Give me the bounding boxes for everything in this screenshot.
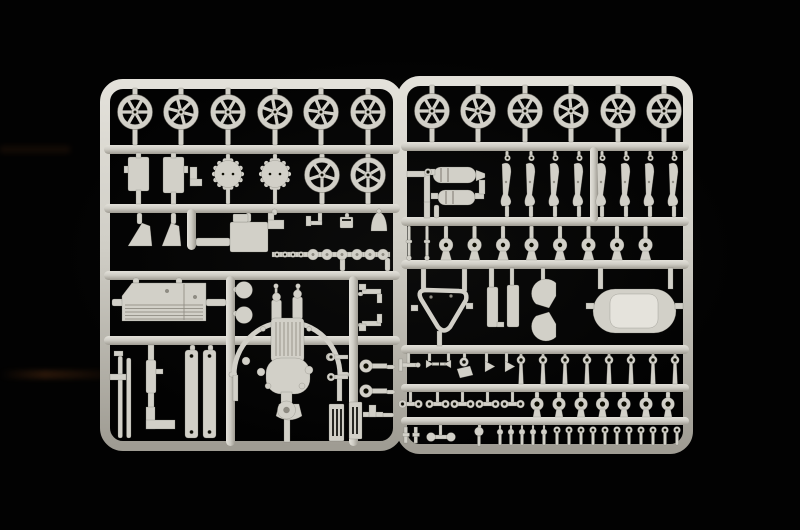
leaf-spring [501, 151, 511, 217]
ribbed-plate-1 [329, 404, 344, 441]
ring-pin [605, 354, 613, 384]
sprue-frames [104, 81, 689, 449]
sprue-photo [0, 0, 800, 530]
half-moon-parts [532, 268, 557, 341]
round-head-pin [582, 226, 596, 260]
spoked-wheel [164, 88, 199, 145]
flag-pin-2 [505, 353, 515, 372]
sprue-gate [385, 258, 390, 271]
spoked-wheel [304, 88, 339, 145]
ring-pin-large [531, 392, 544, 417]
ring-pin-small [650, 427, 657, 446]
ring-pin-small [602, 427, 609, 446]
sprue-gate [434, 205, 439, 218]
sprocket-wheel [212, 154, 244, 204]
leaf-spring [668, 151, 678, 217]
small-parts-row [403, 425, 484, 446]
round-head-pin [610, 226, 624, 260]
small-peg [508, 425, 514, 445]
seat-cushion [586, 268, 683, 333]
leaf-spring [620, 151, 630, 217]
spoked-wheel [258, 88, 293, 145]
ribbed-plate-2 [349, 402, 362, 439]
link-row [399, 392, 525, 408]
spoked-wheel [351, 88, 386, 145]
ring-pin [561, 354, 569, 384]
sprue-gate [386, 365, 395, 369]
round-head-pin [468, 226, 482, 260]
wedge-bracket-2 [162, 223, 181, 246]
small-peg [530, 425, 536, 445]
leaf-spring [525, 151, 535, 217]
fitting-arrow-1 [426, 353, 439, 368]
flag-pin-1 [485, 353, 495, 372]
spoked-wheel [601, 85, 636, 142]
strip-parts [487, 268, 519, 327]
ring-pin-small [638, 427, 645, 446]
spoked-wheel [647, 85, 682, 142]
spoked-wheel [305, 154, 340, 204]
sprocket-wheel [259, 154, 291, 204]
ring-pin-small [614, 427, 621, 446]
ring-pin [627, 354, 635, 384]
sprue-gate [137, 213, 142, 224]
tie-rod-ends [360, 360, 388, 398]
small-peg [497, 425, 503, 445]
ring-pin [539, 354, 547, 384]
small-peg [519, 425, 525, 445]
leaf-spring [644, 151, 654, 217]
leaf-spring [573, 151, 583, 217]
round-head-pin [553, 226, 567, 260]
ring-pin [649, 354, 657, 384]
headlight-discs [236, 282, 253, 324]
spoked-wheel [415, 85, 450, 142]
plain-pin [424, 226, 430, 261]
elbow-pipe [190, 167, 202, 186]
round-head-pin [439, 226, 453, 260]
sprue-gate [206, 299, 226, 306]
thin-rods [110, 351, 131, 438]
ring-pin [517, 354, 525, 384]
sprue-gate [196, 238, 230, 246]
bent-rod [306, 213, 322, 226]
chassis-bars [185, 350, 216, 438]
small-peg [541, 425, 547, 445]
crank-bracket-1 [359, 284, 382, 303]
round-head-pin [525, 226, 539, 260]
radiator-surround [411, 269, 473, 346]
spoked-wheel [211, 88, 246, 145]
ring-pin-large [596, 392, 609, 417]
engine-block [257, 284, 313, 442]
spoked-wheel [554, 85, 589, 142]
engine-hood [122, 283, 206, 321]
ring-pin [583, 354, 591, 384]
ring-pin-small [626, 427, 633, 446]
ring-pin-small [554, 427, 561, 446]
t-bracket [363, 405, 383, 417]
leaf-spring [549, 151, 559, 217]
fitting-clamp [457, 353, 473, 378]
ring-pin [671, 354, 679, 384]
wedge-bracket-1 [128, 223, 152, 246]
column-branch [146, 345, 175, 429]
sprue-gate [171, 213, 176, 224]
ring-pin-large [575, 392, 588, 417]
radiator-box-2 [163, 153, 188, 204]
ring-pin-large [662, 392, 675, 417]
crank-bracket-2 [359, 314, 382, 331]
fitting-arrow-2 [440, 353, 451, 368]
round-head-pin [639, 226, 653, 260]
ring-pin-small [578, 427, 585, 446]
ring-pin-small [590, 427, 597, 446]
photo-background [0, 0, 800, 530]
chain-and-hubs [272, 249, 390, 260]
ring-pin-large [553, 392, 566, 417]
ring-pin-large [618, 392, 631, 417]
spoked-wheel [461, 85, 496, 142]
round-head-pin [496, 226, 510, 260]
spoked-wheel [351, 154, 386, 204]
ring-pin-small [662, 427, 669, 446]
spoked-wheel [118, 88, 153, 145]
spoked-wheel [508, 85, 543, 142]
radiator-box-1 [124, 153, 149, 204]
muffler-lower [431, 180, 485, 205]
z-bracket [268, 213, 284, 229]
ring-pin-large [640, 392, 653, 417]
ring-pin-small [566, 427, 573, 446]
slotted-box [340, 217, 353, 228]
sprue-gate [386, 390, 395, 394]
